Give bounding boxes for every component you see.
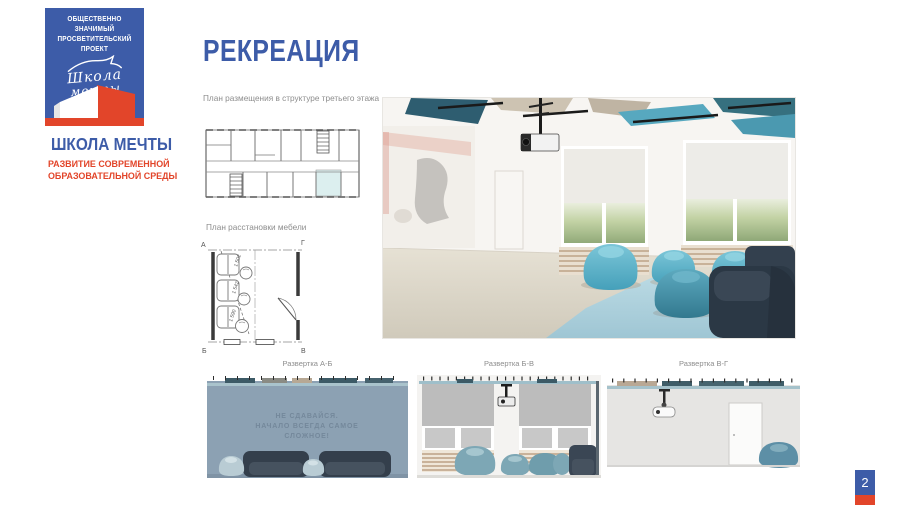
- page-number-accent-strip: [855, 495, 875, 505]
- corner-label-g: Г: [301, 240, 305, 247]
- ceiling-strip: [607, 381, 800, 390]
- school-building-icon: [45, 80, 144, 126]
- projection-screen: [383, 126, 475, 248]
- window-1: [422, 384, 494, 450]
- svg-text:НАЧАЛО ВСЕГДА САМОЕ: НАЧАЛО ВСЕГДА САМОЕ: [255, 423, 358, 430]
- window-1: [561, 146, 648, 247]
- interior-render-photo: [383, 98, 795, 338]
- presentation-slide: ОБЩЕСТВЕННО ЗНАЧИМЫЙ ПРОСВЕТИТЕЛЬСКИЙ ПР…: [0, 0, 900, 508]
- stairs-bottom-icon: [230, 174, 242, 196]
- badge-text: ОБЩЕСТВЕННО ЗНАЧИМЫЙ ПРОСВЕТИТЕЛЬСКИЙ ПР…: [49, 8, 140, 56]
- tagline-line2: ОБРАЗОВАТЕЛЬНОЙ СРЕДЫ: [48, 171, 141, 183]
- tagline: РАЗВИТИЕ СОВРЕМЕННОЙ ОБРАЗОВАТЕЛЬНОЙ СРЕ…: [48, 159, 141, 184]
- floor-plan: [203, 125, 363, 203]
- page-number: 2: [855, 470, 875, 495]
- furniture-plan: А Г Б В 1 502 1 542 1 590: [198, 236, 310, 354]
- sofa: [569, 445, 597, 477]
- elevation-v-g: [607, 377, 800, 473]
- svg-text:СЛОЖНОЕ!: СЛОЖНОЕ!: [284, 433, 329, 440]
- furniture-plan-caption: План расстановки мебели: [206, 222, 306, 232]
- elevation-b-v: [417, 375, 601, 478]
- svg-text:НЕ СДАВАЙСЯ.: НЕ СДАВАЙСЯ.: [275, 411, 338, 420]
- window-2: [683, 140, 791, 245]
- page-title: РЕКРЕАЦИЯ: [203, 33, 360, 69]
- elevation-label-ab: Развертка А-Б: [207, 359, 408, 368]
- brand-badge: ОБЩЕСТВЕННО ЗНАЧИМЫЙ ПРОСВЕТИТЕЛЬСКИЙ ПР…: [45, 8, 144, 126]
- page-number-badge: 2: [855, 470, 875, 505]
- door: [495, 171, 523, 249]
- door: [729, 403, 762, 465]
- corner-label-b: Б: [202, 348, 207, 354]
- ceiling-strip: [207, 378, 408, 386]
- elevation-a-b: НЕ СДАВАЙСЯ. НАЧАЛО ВСЕГДА САМОЕ СЛОЖНОЕ…: [207, 375, 408, 478]
- corner-label-v: В: [301, 348, 306, 354]
- wall-corner: [596, 381, 599, 477]
- window-2: [519, 384, 591, 450]
- stairs-top-icon: [317, 131, 329, 153]
- elevation-label-vg: Развертка В-Г: [607, 359, 800, 368]
- brand-block: ОБЩЕСТВЕННО ЗНАЧИМЫЙ ПРОСВЕТИТЕЛЬСКИЙ ПР…: [45, 8, 144, 184]
- badge-line2: ПРОСВЕТИТЕЛЬСКИЙ ПРОЕКТ: [49, 35, 140, 55]
- corner-label-a: А: [201, 242, 206, 249]
- door-arc-icon: [278, 298, 296, 320]
- pouf-symbol: [236, 267, 253, 333]
- tagline-line1: РАЗВИТИЕ СОВРЕМЕННОЙ: [48, 159, 141, 171]
- badge-line1: ОБЩЕСТВЕННО ЗНАЧИМЫЙ: [49, 15, 140, 35]
- highlighted-room: [316, 170, 341, 196]
- floor-plan-caption: План размещения в структуре третьего эта…: [203, 93, 379, 103]
- org-name: ШКОЛА МЕЧТЫ: [51, 134, 138, 155]
- elevation-label-bv: Развертка Б-В: [417, 359, 601, 368]
